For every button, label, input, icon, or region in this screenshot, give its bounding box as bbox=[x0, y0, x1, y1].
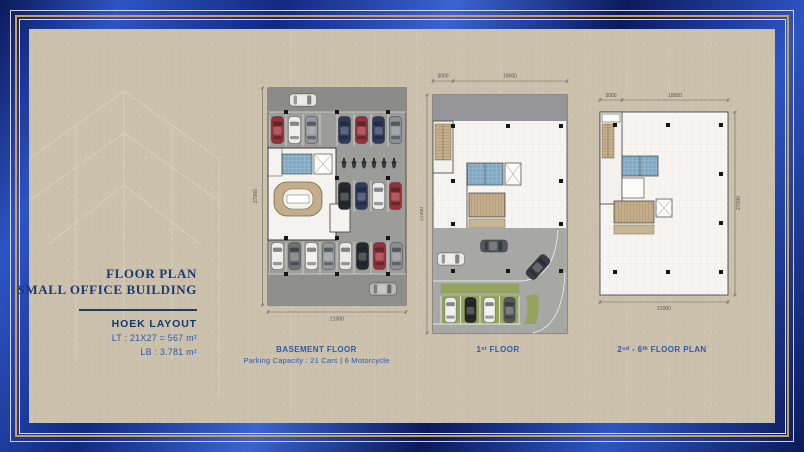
first-floor-lobby bbox=[469, 219, 505, 228]
upper-floor-stair-tower bbox=[600, 112, 622, 204]
basement-caption-capacity: Parking Capacity : 21 Cars | 6 Motorcycl… bbox=[229, 356, 404, 365]
basement-caption-title: BASEMENT FLOOR bbox=[229, 345, 404, 354]
layout-name: HOEK LAYOUT bbox=[7, 318, 197, 330]
page-title-line1: FLOOR PLAN bbox=[7, 266, 197, 282]
first-floor-rear-alley bbox=[433, 95, 567, 121]
first-dim-18000-label: 18000 bbox=[503, 74, 517, 80]
landscape-strip bbox=[441, 284, 519, 293]
first-floor-caption-title: 1ˢᵗ FLOOR bbox=[448, 345, 548, 354]
upper-dim-side-label: 27000 bbox=[736, 196, 742, 210]
upper-floor-lobby bbox=[614, 225, 654, 234]
first-dim-side-label: 27000 bbox=[420, 207, 425, 221]
upper-floor-caption: 2ⁿᵈ - 6ᵗʰ FLOOR PLAN bbox=[592, 345, 732, 354]
upper-floor-room bbox=[622, 178, 644, 198]
upper-floor-caption-title: 2ⁿᵈ - 6ᵗʰ FLOOR PLAN bbox=[592, 345, 732, 354]
building-area-value: LB : 3.781 m² bbox=[7, 346, 197, 358]
land-area-value: LT : 21X27 = 567 m² bbox=[7, 332, 197, 344]
basement-caption: BASEMENT FLOOR Parking Capacity : 21 Car… bbox=[229, 345, 404, 365]
basement-dim-side-label: 27000 bbox=[253, 189, 259, 203]
basement-dim-bottom-label: 21000 bbox=[330, 317, 344, 323]
first-floor-caption: 1ˢᵗ FLOOR bbox=[448, 345, 548, 354]
first-floor-stair-tower bbox=[433, 121, 453, 173]
first-floor-driveway bbox=[433, 228, 567, 333]
page-title-line2: SMALL OFFICE BUILDING bbox=[7, 282, 197, 298]
basement-toilets bbox=[282, 154, 312, 174]
slide-canvas: 21000 27000 bbox=[0, 0, 804, 452]
upper-dim-18000-label: 18000 bbox=[668, 93, 682, 99]
upper-floor-plan: 3000 18000 21000 27000 bbox=[588, 88, 748, 323]
basement-floor-plan: 21000 27000 bbox=[252, 84, 422, 324]
first-floor-stairs bbox=[469, 193, 505, 217]
upper-dim-3000-label: 3000 bbox=[605, 93, 616, 99]
upper-floor-stairs bbox=[614, 201, 654, 223]
upper-dim-bottom-label: 21000 bbox=[657, 306, 671, 312]
basement-top-drive-aisle bbox=[268, 88, 406, 112]
panel-divider bbox=[79, 309, 197, 311]
first-dim-3000-label: 3000 bbox=[437, 74, 448, 80]
info-panel: FLOOR PLAN SMALL OFFICE BUILDING HOEK LA… bbox=[7, 266, 197, 358]
first-floor-plan: 3000 18000 27000 bbox=[420, 60, 580, 350]
